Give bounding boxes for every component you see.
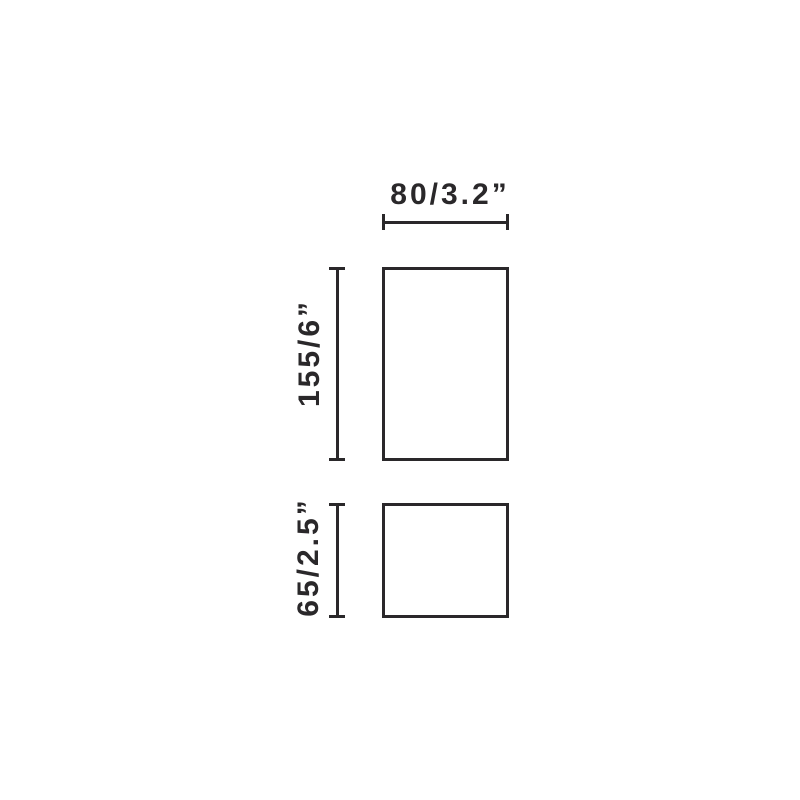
upper-height-dimension-line [329, 267, 345, 461]
dimension-tick-right [506, 214, 509, 230]
dimension-diagram: 80/3.2” 155/6” 65/2.5” [0, 0, 800, 800]
lower-rectangle-outline [382, 503, 509, 618]
dimension-bar [336, 267, 339, 461]
upper-rectangle-outline [382, 267, 509, 461]
dimension-tick-bottom [329, 458, 345, 461]
dimension-tick-bottom [329, 615, 345, 618]
lower-height-dimension-line [329, 503, 345, 618]
lower-height-dimension-label: 65/2.5” [294, 497, 324, 616]
dimension-bar [382, 221, 509, 224]
width-dimension-line [382, 214, 509, 230]
dimension-bar [336, 503, 339, 618]
upper-height-dimension-label: 155/6” [295, 299, 325, 407]
width-dimension-label: 80/3.2” [390, 180, 509, 210]
